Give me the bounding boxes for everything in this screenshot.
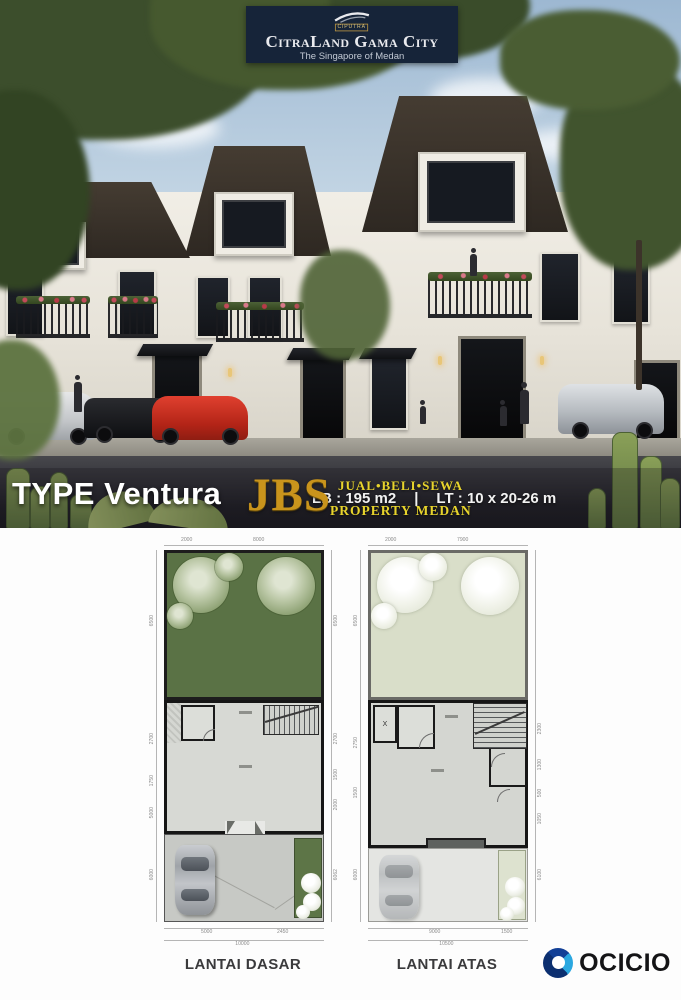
bush xyxy=(296,905,310,919)
bush xyxy=(500,907,514,921)
ocicio-icon xyxy=(543,948,573,978)
upper-plot: X xyxy=(368,550,528,922)
dim-label: 2000 xyxy=(333,799,338,810)
person-head xyxy=(521,382,527,388)
shrub xyxy=(300,250,390,360)
balcony-railing xyxy=(16,300,90,338)
dim-label: 2300 xyxy=(537,723,542,734)
car-windshield xyxy=(385,865,413,878)
room-label-mark xyxy=(239,765,252,768)
tree-plan xyxy=(215,553,243,581)
dormer-glass xyxy=(222,200,286,248)
dim-label: 1500 xyxy=(333,769,338,780)
dim-line xyxy=(331,550,332,922)
ocicio-text: OCICIO xyxy=(579,949,671,978)
person-adult xyxy=(520,390,529,424)
wall-lamp xyxy=(228,368,232,377)
garden-below-view xyxy=(368,550,528,700)
flower-box xyxy=(16,296,90,304)
staircase-upper xyxy=(473,703,527,749)
ocicio-logo: OCICIO xyxy=(543,948,671,978)
person-on-balcony xyxy=(470,254,477,276)
watermark-line-bottom: PROPERTY MEDAN xyxy=(330,503,472,519)
dim-label: 6000 xyxy=(353,869,358,880)
dim-label: 2000 xyxy=(385,537,396,542)
dim-label: 1050 xyxy=(537,813,542,824)
side-garden-faded xyxy=(498,850,526,920)
car-wheel xyxy=(636,422,653,439)
dim-label: 500 xyxy=(537,789,542,798)
tree-plan xyxy=(419,553,447,581)
dim-label: 1500 xyxy=(501,929,512,934)
dim-label: 2700 xyxy=(149,733,154,744)
dim-label: 6000 xyxy=(149,869,154,880)
entry-door xyxy=(300,356,346,441)
dim-label: 5000 xyxy=(149,807,154,818)
balcony-railing xyxy=(216,306,304,342)
window xyxy=(540,252,580,322)
car-rear-glass xyxy=(385,895,413,906)
awning xyxy=(137,344,213,356)
car-wheel xyxy=(572,422,589,439)
ground-interior xyxy=(164,700,324,834)
room-label-mark xyxy=(445,715,458,718)
room-label-mark xyxy=(239,711,252,714)
balcony-railing xyxy=(428,276,532,318)
car-windshield xyxy=(181,857,209,871)
bush xyxy=(301,873,321,893)
dim-label: 1750 xyxy=(149,775,154,786)
dim-label: 6062 xyxy=(333,869,338,880)
ciputra-mark: CIPUTRA xyxy=(335,24,368,32)
bath-mark: X xyxy=(383,721,388,728)
dormer-window-center xyxy=(214,192,294,256)
hero-render: CIPUTRA CitraLand Gama City The Singapor… xyxy=(0,0,681,528)
dim-label: 10000 xyxy=(235,941,249,946)
entry-door-leaf xyxy=(227,821,235,834)
side-pad xyxy=(167,703,181,743)
door-arc xyxy=(491,753,505,767)
type-label: TYPE Ventura xyxy=(12,476,221,512)
floorplan-ground: 2000 8000 6500 2700 1750 5000 6000 6500 … xyxy=(148,536,338,950)
dim-label: 6500 xyxy=(333,615,338,626)
dim-label: 1300 xyxy=(537,759,542,770)
dim-label: 2750 xyxy=(353,737,358,748)
door-arc xyxy=(497,789,510,802)
upper-plan-label: LANTAI ATAS xyxy=(352,956,542,973)
tree-plan xyxy=(167,603,193,629)
brand-banner: CIPUTRA CitraLand Gama City The Singapor… xyxy=(246,6,458,63)
dim-line xyxy=(535,550,536,922)
main-entry-door xyxy=(458,336,526,441)
dim-label: 8000 xyxy=(253,537,264,542)
car-rear-glass xyxy=(181,889,209,901)
dim-label: 9000 xyxy=(429,929,440,934)
car-wheel xyxy=(222,428,239,445)
watermark-line-top: JUAL•BELI•SEWA xyxy=(338,478,463,494)
wall xyxy=(489,785,527,787)
tree-plan xyxy=(257,557,315,615)
flower-box xyxy=(428,272,532,281)
dim-label: 2700 xyxy=(333,733,338,744)
tree-plan xyxy=(461,557,519,615)
floorplan-upper: 2000 7900 6500 2750 1500 6000 2300 1300 … xyxy=(352,536,542,950)
bathroom-upper: X xyxy=(373,705,397,743)
car-wheel xyxy=(96,426,113,443)
car-wheel xyxy=(162,428,179,445)
dim-label: 7900 xyxy=(457,537,468,542)
entry-door-leaf xyxy=(255,821,263,834)
dim-label: 1500 xyxy=(353,787,358,798)
tree-plan xyxy=(371,603,397,629)
dim-line xyxy=(164,928,324,929)
dim-label: 10500 xyxy=(439,941,453,946)
person-head xyxy=(75,375,80,380)
wall-lamp xyxy=(540,356,544,365)
upper-interior: X xyxy=(368,700,528,848)
person-walking xyxy=(74,382,82,412)
wall-lamp xyxy=(438,356,442,365)
flower-box xyxy=(216,302,304,310)
dim-label: 6100 xyxy=(537,869,542,880)
dim-line xyxy=(156,550,157,922)
dim-label: 2450 xyxy=(277,929,288,934)
person-child-bike xyxy=(420,406,426,424)
ground-plan-label: LANTAI DASAR xyxy=(148,956,338,973)
person-head xyxy=(420,400,425,405)
front-side-garden xyxy=(294,838,322,918)
dormer-glass xyxy=(427,161,515,223)
car-top-view-faded xyxy=(379,855,419,919)
balcony-railing xyxy=(108,300,158,338)
ground-window xyxy=(370,356,408,430)
ground-plot xyxy=(164,550,324,922)
car-top-view xyxy=(175,845,215,915)
wall xyxy=(489,749,491,785)
floorplan-section xyxy=(0,528,681,1000)
tree-canopy xyxy=(500,10,680,110)
dim-line xyxy=(164,545,324,546)
brand-title: CitraLand Gama City xyxy=(265,33,438,50)
brand-tagline: The Singapore of Medan xyxy=(300,51,405,62)
back-garden xyxy=(164,550,324,700)
dim-line xyxy=(368,545,528,546)
tree-trunk xyxy=(636,240,642,390)
bush xyxy=(505,877,525,897)
dim-line xyxy=(360,550,361,922)
dim-label: 5000 xyxy=(201,929,212,934)
dormer-window-right xyxy=(418,152,526,232)
person-head xyxy=(471,248,476,253)
jbs-watermark: JBS xyxy=(247,468,331,522)
flyer: CIPUTRA CitraLand Gama City The Singapor… xyxy=(0,0,681,1000)
flower-box xyxy=(108,296,158,304)
room-label-mark xyxy=(431,769,444,772)
dim-label: 6500 xyxy=(353,615,358,626)
swoosh-logo-icon xyxy=(329,9,375,25)
person-child xyxy=(500,406,507,426)
dim-label: 6500 xyxy=(149,615,154,626)
person-head xyxy=(500,400,505,405)
dim-label: 2000 xyxy=(181,537,192,542)
